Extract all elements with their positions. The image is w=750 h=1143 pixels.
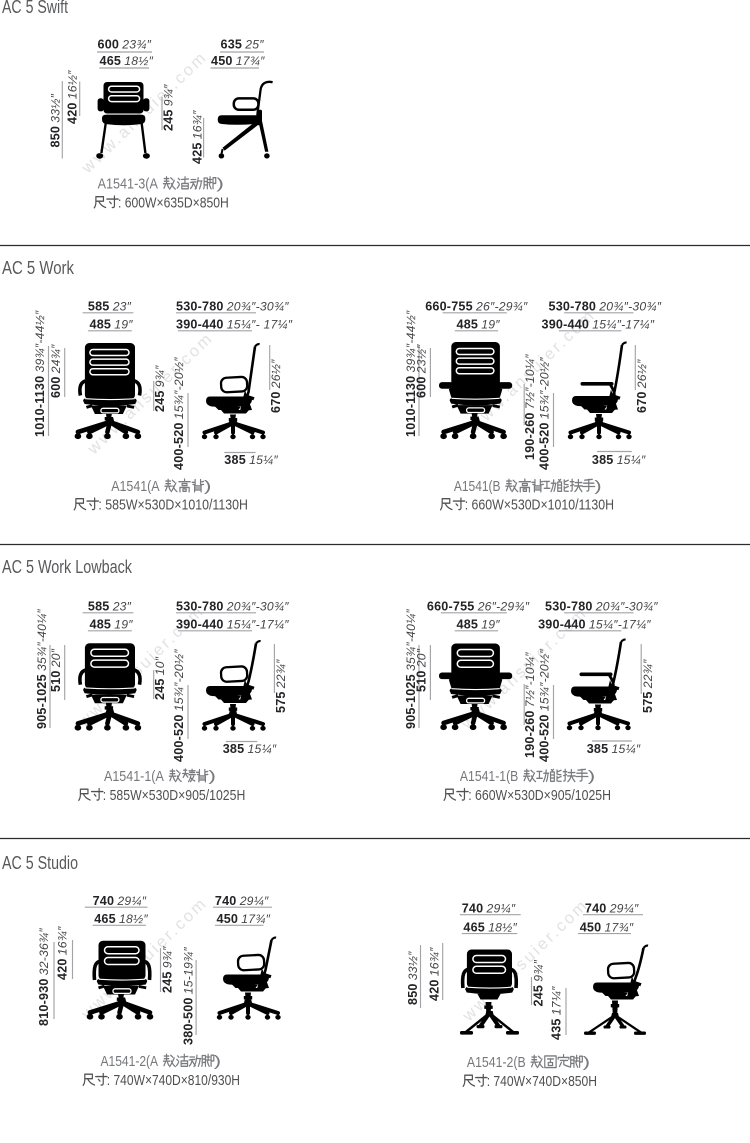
svg-text:530-780: 530-780: [176, 300, 224, 314]
svg-text:: 600W×635D×850H: : 600W×635D×850H: [118, 195, 229, 212]
svg-text:485: 485: [457, 318, 479, 332]
svg-text:18½″: 18½″: [124, 54, 153, 68]
svg-text:740: 740: [215, 894, 237, 908]
svg-text:67026½″: 67026½″: [635, 359, 649, 413]
svg-text:): ): [588, 768, 596, 785]
svg-text:A1541-3(A: A1541-3(A: [98, 176, 158, 193]
svg-text:29¼″: 29¼″: [486, 902, 516, 916]
svg-text:740: 740: [93, 894, 115, 908]
svg-text:): ): [583, 1054, 591, 1071]
svg-text:15¼″-17¼″: 15¼″-17¼″: [592, 318, 654, 332]
svg-text:905-102535¾″-40¼″: 905-102535¾″-40¼″: [35, 609, 49, 729]
svg-text:450: 450: [580, 920, 602, 934]
svg-text:20¾″-30¾″: 20¾″-30¾″: [226, 600, 289, 614]
svg-text:: 740W×740D×810/930H: : 740W×740D×810/930H: [107, 1072, 240, 1089]
svg-text:390-440: 390-440: [176, 318, 224, 332]
svg-text:465: 465: [100, 54, 122, 68]
svg-text:57522¾″: 57522¾″: [274, 659, 288, 713]
svg-text:23¾″: 23¾″: [121, 38, 151, 52]
svg-text:: 585W×530D×1010/1130H: : 585W×530D×1010/1130H: [98, 497, 248, 514]
svg-text:390-440: 390-440: [542, 318, 590, 332]
svg-text:15¼″-17¼″: 15¼″-17¼″: [589, 618, 651, 632]
svg-text:17¾″: 17¾″: [236, 54, 265, 68]
svg-text:450: 450: [217, 912, 239, 926]
svg-text:A1541-1(B: A1541-1(B: [460, 768, 518, 785]
svg-text:18½″: 18½″: [488, 920, 517, 934]
svg-text:42016¾″: 42016¾″: [428, 947, 442, 1001]
svg-text:15¼″- 17¼″: 15¼″- 17¼″: [227, 318, 293, 332]
svg-text:530-780: 530-780: [549, 300, 597, 314]
svg-text:905-102535¾″-40¼″: 905-102535¾″-40¼″: [404, 609, 418, 729]
svg-text:: 660W×530D×1010/1130H: : 660W×530D×1010/1130H: [465, 497, 614, 514]
svg-text:19″: 19″: [481, 318, 500, 332]
svg-text:: 585W×530D×905/1025H: : 585W×530D×905/1025H: [103, 787, 246, 804]
svg-text:465: 465: [463, 920, 485, 934]
svg-text:585: 585: [88, 600, 110, 614]
svg-text:29¼″: 29¼″: [239, 894, 269, 908]
svg-text:): ): [216, 176, 224, 193]
svg-text:15¼″: 15¼″: [612, 742, 641, 756]
svg-text:385: 385: [223, 742, 245, 756]
svg-text:19″: 19″: [114, 618, 133, 632]
svg-text:400-52015¾″-20½″: 400-52015¾″-20½″: [172, 649, 186, 762]
svg-text:23″: 23″: [112, 600, 132, 614]
svg-text:67026½″: 67026½″: [269, 359, 283, 413]
svg-text:385: 385: [592, 453, 614, 467]
svg-text:20¾″-30¾″: 20¾″-30¾″: [598, 300, 661, 314]
svg-text:15¼″: 15¼″: [249, 453, 278, 467]
svg-text:AC 5 Swift: AC 5 Swift: [2, 0, 68, 17]
svg-text:660-755: 660-755: [425, 300, 473, 314]
svg-text:19″: 19″: [481, 618, 500, 632]
svg-text:485: 485: [457, 618, 479, 632]
svg-text:585: 585: [88, 300, 110, 314]
svg-text:): ): [594, 478, 601, 495]
svg-text:400-52015¾″-20½″: 400-52015¾″-20½″: [172, 357, 186, 470]
svg-text:530-780: 530-780: [176, 600, 224, 614]
svg-text:400-52015¾″-20½″: 400-52015¾″-20½″: [538, 649, 552, 762]
svg-text:26″-29¾″: 26″-29¾″: [477, 600, 530, 614]
svg-text:530-780: 530-780: [545, 600, 593, 614]
svg-text:18½″: 18½″: [119, 912, 148, 926]
svg-text:43517¼″: 43517¼″: [550, 986, 564, 1040]
svg-text:660-755: 660-755: [427, 600, 475, 614]
svg-text:485: 485: [90, 318, 112, 332]
svg-text:29¼″: 29¼″: [609, 902, 639, 916]
svg-text:42016¾″: 42016¾″: [56, 926, 70, 980]
svg-text:26″-29¾″: 26″-29¾″: [475, 300, 528, 314]
svg-text:A1541-1(A: A1541-1(A: [104, 768, 164, 785]
svg-text:20¾″-30¾″: 20¾″-30¾″: [226, 300, 289, 314]
svg-text:390-440: 390-440: [176, 618, 224, 632]
svg-text:): ): [214, 1053, 221, 1070]
svg-text:): ): [204, 478, 212, 495]
svg-text:390-440: 390-440: [538, 618, 586, 632]
svg-text:635: 635: [221, 38, 243, 52]
svg-text:25″: 25″: [244, 38, 264, 52]
svg-text:15¼″-17¼″: 15¼″-17¼″: [227, 618, 289, 632]
svg-text:400-52015¾″-20½″: 400-52015¾″-20½″: [538, 357, 552, 470]
svg-text:AC 5 Work Lowback: AC 5 Work Lowback: [2, 557, 133, 577]
svg-text:: 740W×740D×850H: : 740W×740D×850H: [487, 1073, 597, 1090]
svg-text:42516¾″: 42516¾″: [191, 110, 205, 164]
svg-text:385: 385: [224, 453, 246, 467]
svg-text:600: 600: [98, 38, 120, 52]
svg-text:20¾″-30¾″: 20¾″-30¾″: [595, 600, 658, 614]
svg-text:17¾″: 17¾″: [241, 912, 270, 926]
svg-text:190-2607½″-10¼″: 190-2607½″-10¼″: [523, 652, 537, 758]
svg-text:85033½″: 85033½″: [49, 93, 63, 147]
svg-text:29¼″: 29¼″: [116, 894, 146, 908]
svg-text:190-2607½″-10¼″: 190-2607½″-10¼″: [523, 354, 537, 460]
svg-text:485: 485: [90, 618, 112, 632]
svg-text:A1541(A: A1541(A: [111, 478, 159, 495]
svg-text:465: 465: [94, 912, 116, 926]
svg-text:): ): [208, 768, 216, 785]
svg-text:17¾″: 17¾″: [605, 920, 634, 934]
svg-text:60024¾″: 60024¾″: [49, 344, 63, 398]
svg-text:57522¾″: 57522¾″: [641, 659, 655, 713]
svg-text:385: 385: [587, 742, 609, 756]
svg-text:42016½″: 42016½″: [66, 70, 80, 124]
svg-text:740: 740: [462, 902, 484, 916]
svg-text:85033½″: 85033½″: [406, 951, 420, 1005]
svg-text:AC 5 Work: AC 5 Work: [2, 258, 75, 278]
svg-text:15¼″: 15¼″: [617, 453, 646, 467]
svg-text:15¼″: 15¼″: [248, 742, 277, 756]
svg-text:60023½″: 60023½″: [415, 344, 429, 398]
svg-text:19″: 19″: [114, 318, 133, 332]
svg-text:450: 450: [211, 54, 233, 68]
svg-text:AC 5 Studio: AC 5 Studio: [2, 853, 78, 873]
svg-text:A1541(B: A1541(B: [454, 478, 501, 495]
svg-text:23″: 23″: [112, 300, 132, 314]
svg-text:740: 740: [585, 902, 607, 916]
svg-text:A1541-2(A: A1541-2(A: [101, 1053, 159, 1070]
svg-text:A1541-2(B: A1541-2(B: [467, 1054, 526, 1071]
svg-text:: 660W×530D×905/1025H: : 660W×530D×905/1025H: [468, 787, 611, 804]
